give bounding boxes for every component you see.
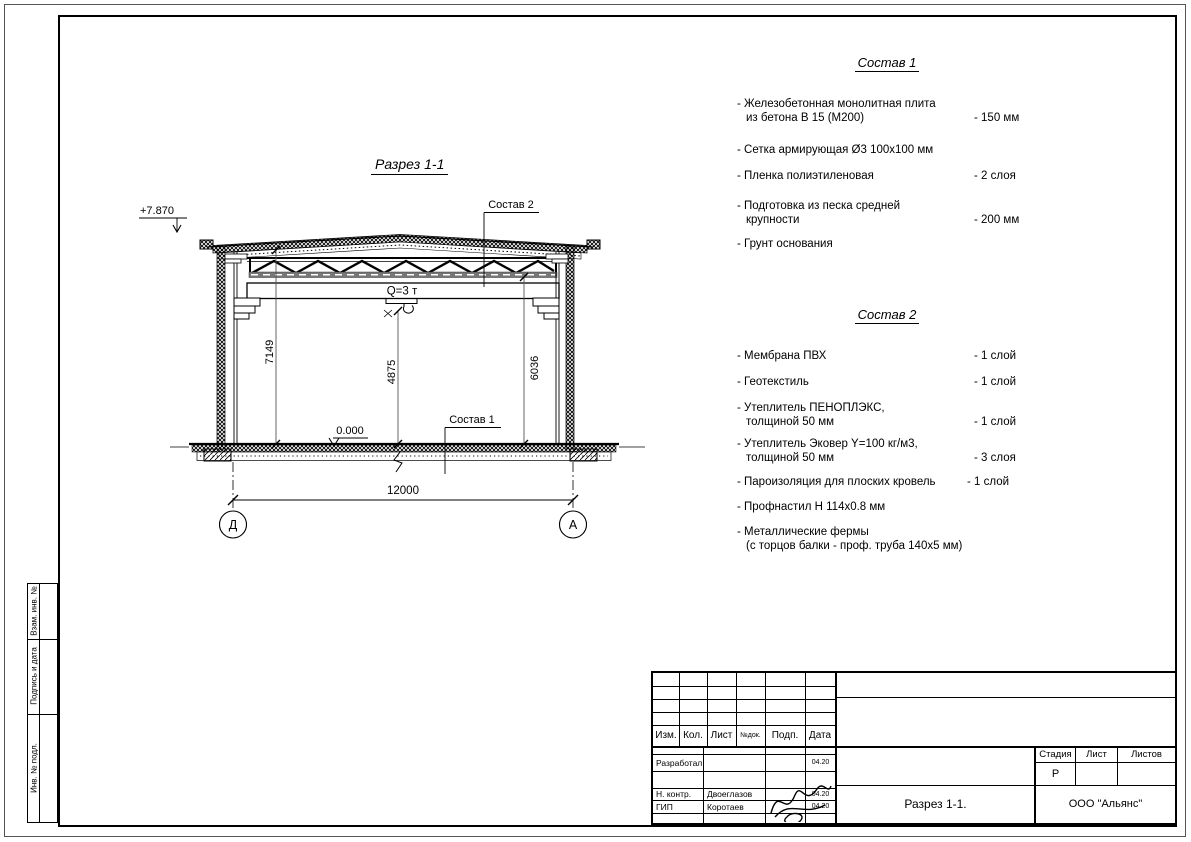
dim-7149-label: 7149 (264, 340, 276, 364)
leader-sostav2-label: Состав 2 (488, 199, 534, 211)
list-item: - Сетка армирующая Ø3 100x100 мм (737, 143, 1037, 157)
dim-12000: 12000 (228, 462, 578, 511)
col-list: Лист (707, 725, 736, 746)
line (28, 639, 57, 640)
item-text: - Утеплитель ПЕНОПЛЭКС, (737, 401, 974, 415)
item-text: - Железобетонная монолитная плита (737, 97, 974, 111)
stage-value: Р (1036, 762, 1075, 785)
list-item: - Подготовка из песка среднейкрупности -… (737, 199, 1037, 227)
list-item: - Грунт основания (737, 237, 1037, 251)
crane-corbel (533, 298, 559, 306)
item-text: - Профнастил Н 114х0.8 мм (737, 500, 974, 514)
line (653, 712, 835, 713)
crane-capacity-label: Q=3 т (387, 286, 418, 298)
item-text: - Подготовка из песка средней (737, 199, 974, 213)
list-item: - Пароизоляция для плоских кровель - 1 с… (737, 475, 1037, 489)
col-podp: Подп. (765, 725, 805, 746)
axis-marker-right: А (560, 511, 587, 538)
elevation-label: +7.870 (140, 205, 174, 217)
roof-truss (247, 258, 559, 278)
sheet-label: Лист (1076, 746, 1117, 762)
item-text: толщиной 50 мм (737, 451, 974, 465)
col-izm: Изм. (653, 725, 679, 746)
item-value: - 1 слой (967, 475, 1009, 489)
foundation-block (570, 449, 597, 461)
item-value: - 150 мм (974, 111, 1019, 125)
row-name: Двоеглазов (704, 788, 768, 800)
list-item: - Мембрана ПВХ - 1 слой (737, 349, 1037, 363)
stage-label: Стадия (1036, 746, 1075, 762)
col-ndok: №док. (736, 725, 765, 746)
list-item: - Металлические фермы(с торцов балки - п… (737, 525, 1037, 553)
side-strip-label: Подпись и дата (30, 647, 39, 705)
roof-end-plate (200, 240, 213, 249)
crane-trolley (386, 299, 417, 304)
crane-beam: Q=3 т (247, 283, 559, 317)
item-value: - 200 мм (974, 213, 1019, 227)
col-kol: Кол. (679, 725, 707, 746)
side-strip-label: Взам. инв. № (30, 586, 39, 636)
item-text: крупности (737, 213, 974, 227)
axis-left-label: Д (229, 518, 238, 532)
signature (765, 777, 835, 822)
dim-4875: 4875 (386, 307, 402, 448)
roof-end-plate (587, 240, 600, 249)
item-value: - 3 слоя (974, 451, 1016, 465)
company-name: ООО "Альянс" (1036, 785, 1175, 823)
section-drawing: Q=3 т (90, 150, 670, 550)
line (835, 697, 1175, 698)
dim-6036-label: 6036 (529, 356, 541, 380)
sostav1-title: Состав 1 (737, 54, 1037, 71)
item-text: - Металлические фермы (737, 525, 997, 539)
sheets-label: Листов (1118, 746, 1175, 762)
row-role: Н. контр. (653, 788, 706, 800)
item-text: - Пароизоляция для плоских кровель (737, 475, 967, 489)
col-data: Дата (805, 725, 835, 746)
row-name (704, 754, 768, 771)
item-text: из бетона В 15 (М200) (737, 111, 974, 125)
list-item: - Утеплитель Эковер Y=100 кг/м3,толщиной… (737, 437, 1037, 465)
axis-right-label: А (569, 518, 578, 532)
item-text: - Сетка армирующая Ø3 100x100 мм (737, 143, 974, 157)
dim-4875-label: 4875 (386, 360, 398, 384)
hook-mark (384, 310, 392, 317)
row-role: ГИП (653, 800, 706, 813)
floor-slab (170, 444, 645, 472)
list-item: - Профнастил Н 114х0.8 мм (737, 500, 1037, 514)
list-item: - Геотекстиль - 1 слой (737, 375, 1037, 389)
side-strip-label: Инв. № подл. (30, 743, 39, 793)
sostav2-list: Состав 2 - Мембрана ПВХ - 1 слой - Геоте… (737, 306, 1037, 553)
item-text: - Мембрана ПВХ (737, 349, 974, 363)
axis-marker-left: Д (220, 511, 247, 538)
item-value: - 2 слоя (974, 169, 1016, 183)
dim-12000-label: 12000 (387, 485, 419, 497)
line (39, 584, 40, 822)
line (653, 686, 835, 687)
line (653, 771, 835, 772)
roof (200, 235, 600, 260)
zero-level-label: 0.000 (336, 425, 364, 437)
elevation-mark: +7.870 (139, 205, 187, 232)
item-value: - 1 слой (974, 415, 1016, 429)
row-role: Разработал (653, 754, 706, 771)
sostav2-title: Состав 2 (737, 306, 1037, 323)
list-item: - Утеплитель ПЕНОПЛЭКС,толщиной 50 мм - … (737, 401, 1037, 429)
crane-corbel (234, 298, 260, 306)
line (653, 699, 835, 700)
sostav1-list: Состав 1 - Железобетонная монолитная пли… (737, 54, 1037, 251)
item-text: (с торцов балки - проф. труба 140х5 мм) (737, 539, 997, 553)
side-strip: Взам. инв. № Подпись и дата Инв. № подл. (27, 583, 58, 823)
item-text: толщиной 50 мм (737, 415, 974, 429)
list-item: - Железобетонная монолитная плитаиз бето… (737, 97, 1037, 125)
zero-level-mark: 0.000 (329, 425, 368, 446)
row-date: 04.20 (806, 754, 835, 771)
doc-name: Разрез 1-1. (837, 785, 1034, 823)
drawing-sheet: Взам. инв. № Подпись и дата Инв. № подл.… (0, 0, 1191, 842)
title-block: Изм. Кол. Лист №док. Подп. Дата Разработ… (651, 671, 1177, 825)
item-value: - 1 слой (974, 349, 1016, 363)
leader-sostav1-label: Состав 1 (449, 414, 495, 426)
item-text: - Утеплитель Эковер Y=100 кг/м3, (737, 437, 974, 451)
item-text: - Геотекстиль (737, 375, 974, 389)
line (28, 714, 57, 715)
row-name: Коротаев (704, 800, 768, 813)
crane-hook-icon (403, 304, 413, 314)
item-text: - Пленка полиэтиленовая (737, 169, 974, 183)
foundation-block (204, 449, 231, 461)
item-text: - Грунт основания (737, 237, 974, 251)
list-item: - Пленка полиэтиленовая - 2 слоя (737, 169, 1037, 183)
item-value: - 1 слой (974, 375, 1016, 389)
